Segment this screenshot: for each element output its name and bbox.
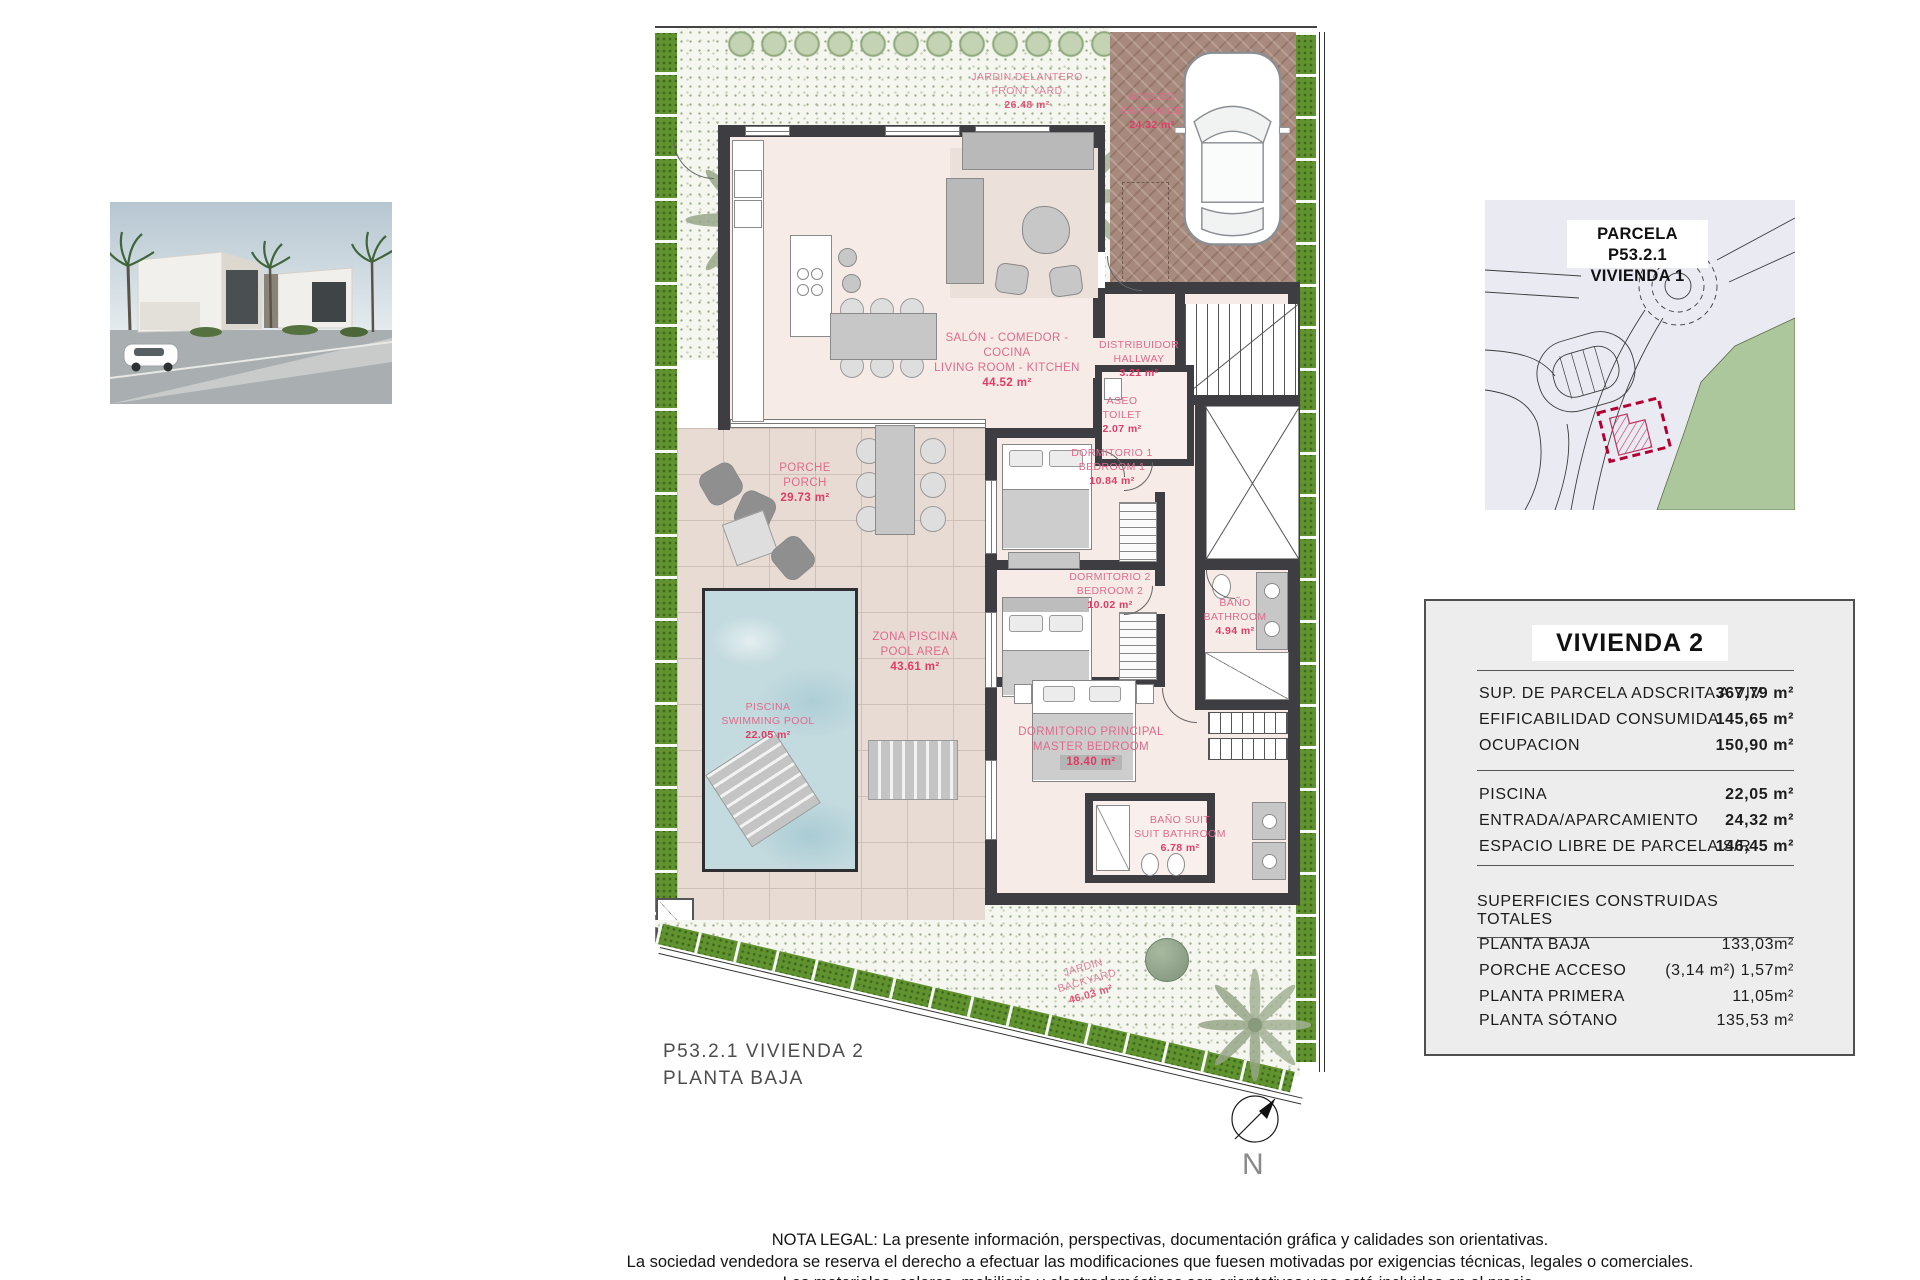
row-value: 145,65 m² (1716, 711, 1794, 729)
row-value: 367,79 m² (1716, 685, 1794, 703)
window (985, 760, 997, 840)
room-area: 10.84 m² (1042, 474, 1182, 488)
room-name-en: TOILET (1067, 408, 1177, 422)
wall (1195, 700, 1300, 710)
bathtub (1205, 652, 1289, 700)
room-area: 18.40 m² (1060, 755, 1121, 770)
bed-bench (1008, 552, 1080, 569)
site-title-line2: VIVIENDA 1 (1567, 266, 1708, 287)
room-name-es: DORMITORIO 2 (1040, 570, 1180, 584)
info-row: SUP. DE PARCELA ADSCRITA A VIV. 367,79 m… (1479, 685, 1794, 703)
room-name-es: BAÑO (1175, 596, 1295, 610)
sofa (962, 132, 1094, 170)
room-name-es: DORMITORIO 1 (1042, 446, 1182, 460)
room-area: 10.02 m² (1040, 598, 1180, 612)
porch-chair (920, 472, 946, 498)
porch-table (875, 425, 915, 535)
room-name-en: BEDROOM 1 (1042, 460, 1182, 474)
plan-title-line1: P53.2.1 VIVIENDA 2 (663, 1038, 864, 1065)
wall (985, 893, 1300, 905)
wall (1195, 405, 1205, 702)
suite-vanity (1252, 802, 1286, 840)
plan-title: P53.2.1 VIVIENDA 2 PLANTA BAJA (663, 1038, 864, 1092)
row-label: PLANTA SÓTANO (1479, 1012, 1618, 1029)
room-name-en: MASTER BEDROOM (1001, 740, 1181, 755)
room-name-en: SUIT BATHROOM (1110, 827, 1250, 841)
label-entrance: ACCESO ENTRANCE 24.32 m² (1087, 90, 1217, 132)
room-name-en: FRONT YARD (952, 84, 1102, 98)
suite-vanity (1252, 842, 1286, 880)
patio-skylight (1205, 405, 1300, 560)
legal-note: NOTA LEGAL: La presente información, per… (520, 1230, 1800, 1280)
coffee-table (1022, 206, 1070, 254)
info-panel-title: VIVIENDA 2 (1532, 625, 1728, 661)
stool (838, 248, 857, 267)
floor-plan: JARDIN DELANTERO FRONT YARD 26.48 m² ACC… (640, 20, 1340, 1230)
tree-icon (1145, 938, 1189, 982)
label-bedroom-1: DORMITORIO 1 BEDROOM 1 10.84 m² (1042, 446, 1182, 488)
divider (1477, 865, 1794, 866)
room-name-es: ASEO (1067, 394, 1177, 408)
row-label: EFIFICABILIDAD CONSUMIDA (1479, 711, 1719, 728)
room-area: 44.52 m² (932, 376, 1082, 391)
kitchen-appliance (734, 170, 762, 198)
info-row: OCUPACION 150,90 m² (1479, 737, 1794, 755)
row-value: (3,14 m²) 1,57m² (1665, 962, 1794, 980)
armchair (994, 262, 1030, 296)
render-image (110, 202, 392, 404)
room-name-en: BEDROOM 2 (1040, 584, 1180, 598)
wall (1180, 395, 1300, 405)
basement-stairs (1208, 712, 1288, 734)
site-plan-panel: PARCELA P53.2.1 VIVIENDA 1 (1485, 200, 1795, 510)
room-name-es: SALÓN - COMEDOR -COCINA (932, 331, 1082, 361)
built-heading: SUPERFICIES CONSTRUIDAS TOTALES (1477, 893, 1794, 938)
label-toilet: ASEO TOILET 2.07 m² (1067, 394, 1177, 436)
row-value: 146,45 m² (1716, 838, 1794, 856)
room-area: 22.05 m² (693, 728, 843, 742)
room-area: 6.78 m² (1110, 841, 1250, 855)
room-name-es: DISTRIBUIDOR (1069, 338, 1209, 352)
porch-chair (920, 506, 946, 532)
room-name-es: PISCINA (693, 700, 843, 714)
row-label: ESPACIO LIBRE DE PARCELA S/R (1479, 838, 1751, 855)
kitchen-appliance (734, 200, 762, 228)
divider (1477, 770, 1794, 771)
armchair (1048, 264, 1084, 298)
site-title-line1: PARCELA P53.2.1 (1567, 224, 1708, 266)
kitchen-island (790, 235, 832, 337)
info-row: PLANTA BAJA 133,03m² (1479, 936, 1794, 954)
room-name-es: ACCESO (1087, 90, 1217, 104)
legal-line3: Los materiales, colores, mobiliario y el… (520, 1273, 1800, 1280)
room-name-es: ZONA PISCINA (840, 630, 990, 645)
nightstand (1014, 684, 1032, 704)
stool (842, 274, 861, 293)
wardrobe (1119, 612, 1157, 680)
label-bathroom: BAÑO BATHROOM 4.94 m² (1175, 596, 1295, 638)
window (745, 126, 790, 136)
bush-row-top (725, 20, 1117, 68)
wall (1195, 560, 1300, 570)
room-name-en: POOL AREA (840, 645, 990, 660)
basement-stairs (1208, 738, 1288, 760)
window (985, 480, 997, 554)
room-area: 26.48 m² (952, 98, 1102, 112)
info-panel: VIVIENDA 2 SUP. DE PARCELA ADSCRITA A VI… (1424, 599, 1855, 1056)
palm-tree-icon (1195, 965, 1315, 1085)
room-area: 3.21 m² (1069, 366, 1209, 380)
room-name-es: JARDIN DELANTERO (952, 70, 1102, 84)
nightstand (1136, 684, 1154, 704)
row-value: 133,03m² (1722, 936, 1794, 954)
label-hallway: DISTRIBUIDOR HALLWAY 3.21 m² (1069, 338, 1209, 380)
site-plan-title: PARCELA P53.2.1 VIVIENDA 1 (1567, 220, 1708, 268)
room-area: 43.61 m² (840, 660, 990, 675)
info-row: PISCINA 22,05 m² (1479, 786, 1794, 804)
label-living-room: SALÓN - COMEDOR -COCINA LIVING ROOM - KI… (932, 331, 1082, 391)
row-label: PISCINA (1479, 786, 1547, 803)
room-name-es: BAÑO SUIT (1110, 813, 1250, 827)
north-arrow-icon (1225, 1092, 1285, 1152)
car-icon (1175, 40, 1290, 260)
legal-line2: La sociedad vendedora se reserva el dere… (520, 1252, 1800, 1274)
wall (718, 125, 730, 430)
label-porch: PORCHE PORCH 29.73 m² (730, 461, 880, 506)
info-row: PLANTA SÓTANO 135,53 m² (1479, 1012, 1794, 1030)
label-master-bedroom: DORMITORIO PRINCIPAL MASTER BEDROOM 18.4… (1001, 725, 1181, 770)
label-front-yard: JARDIN DELANTERO FRONT YARD 26.48 m² (952, 70, 1102, 112)
room-name-en: LIVING ROOM - KITCHEN (932, 361, 1082, 376)
dining-table (830, 313, 937, 360)
porch-chair (920, 438, 946, 464)
label-suite-bathroom: BAÑO SUIT SUIT BATHROOM 6.78 m² (1110, 813, 1250, 855)
info-row: EFIFICABILIDAD CONSUMIDA 145,65 m² (1479, 711, 1794, 729)
exterior-render-thumbnail (110, 202, 392, 404)
info-row: ESPACIO LIBRE DE PARCELA S/R 146,45 m² (1479, 838, 1794, 856)
window (885, 126, 960, 136)
room-area: 2.07 m² (1067, 422, 1177, 436)
row-label: ENTRADA/APARCAMIENTO (1479, 812, 1698, 829)
legal-line1: NOTA LEGAL: La presente información, per… (520, 1230, 1800, 1252)
row-label: PLANTA BAJA (1479, 936, 1590, 953)
room-name-en: SWIMMING POOL (693, 714, 843, 728)
hedge-left (655, 30, 677, 942)
row-label: PLANTA PRIMERA (1479, 988, 1625, 1005)
row-value: 150,90 m² (1716, 737, 1794, 755)
room-area: 4.94 m² (1175, 624, 1295, 638)
row-value: 22,05 m² (1725, 786, 1794, 804)
label-pool-area: ZONA PISCINA POOL AREA 43.61 m² (840, 630, 990, 675)
info-row: PLANTA PRIMERA 11,05m² (1479, 988, 1794, 1006)
room-name-en: BATHROOM (1175, 610, 1295, 624)
north-label: N (1242, 1148, 1264, 1182)
row-value: 24,32 m² (1725, 812, 1794, 830)
room-name-es: PORCHE (730, 461, 880, 476)
label-swimming-pool: PISCINA SWIMMING POOL 22.05 m² (693, 700, 843, 742)
label-bedroom-2: DORMITORIO 2 BEDROOM 2 10.02 m² (1040, 570, 1180, 612)
porch-glass-doors (730, 419, 986, 428)
row-value: 135,53 m² (1717, 1012, 1794, 1030)
sofa (946, 178, 984, 284)
room-name-en: PORCH (730, 476, 880, 491)
room-name-es: DORMITORIO PRINCIPAL (1001, 725, 1181, 740)
divider (1477, 670, 1794, 671)
info-row: PORCHE ACCESO (3,14 m²) 1,57m² (1479, 962, 1794, 980)
page: JARDIN DELANTERO FRONT YARD 26.48 m² ACC… (0, 0, 1920, 1280)
row-label: PORCHE ACCESO (1479, 962, 1626, 979)
row-value: 11,05m² (1732, 988, 1794, 1006)
room-name-en: HALLWAY (1069, 352, 1209, 366)
room-area: 24.32 m² (1087, 118, 1217, 132)
plan-title-line2: PLANTA BAJA (663, 1065, 864, 1092)
boundary-right (1319, 32, 1325, 1072)
wardrobe (1119, 502, 1157, 562)
sun-loungers (868, 740, 958, 800)
row-label: OCUPACION (1479, 737, 1580, 754)
room-name-en: ENTRANCE (1087, 104, 1217, 118)
room-area: 29.73 m² (730, 491, 880, 506)
info-row: ENTRADA/APARCAMIENTO 24,32 m² (1479, 812, 1794, 830)
